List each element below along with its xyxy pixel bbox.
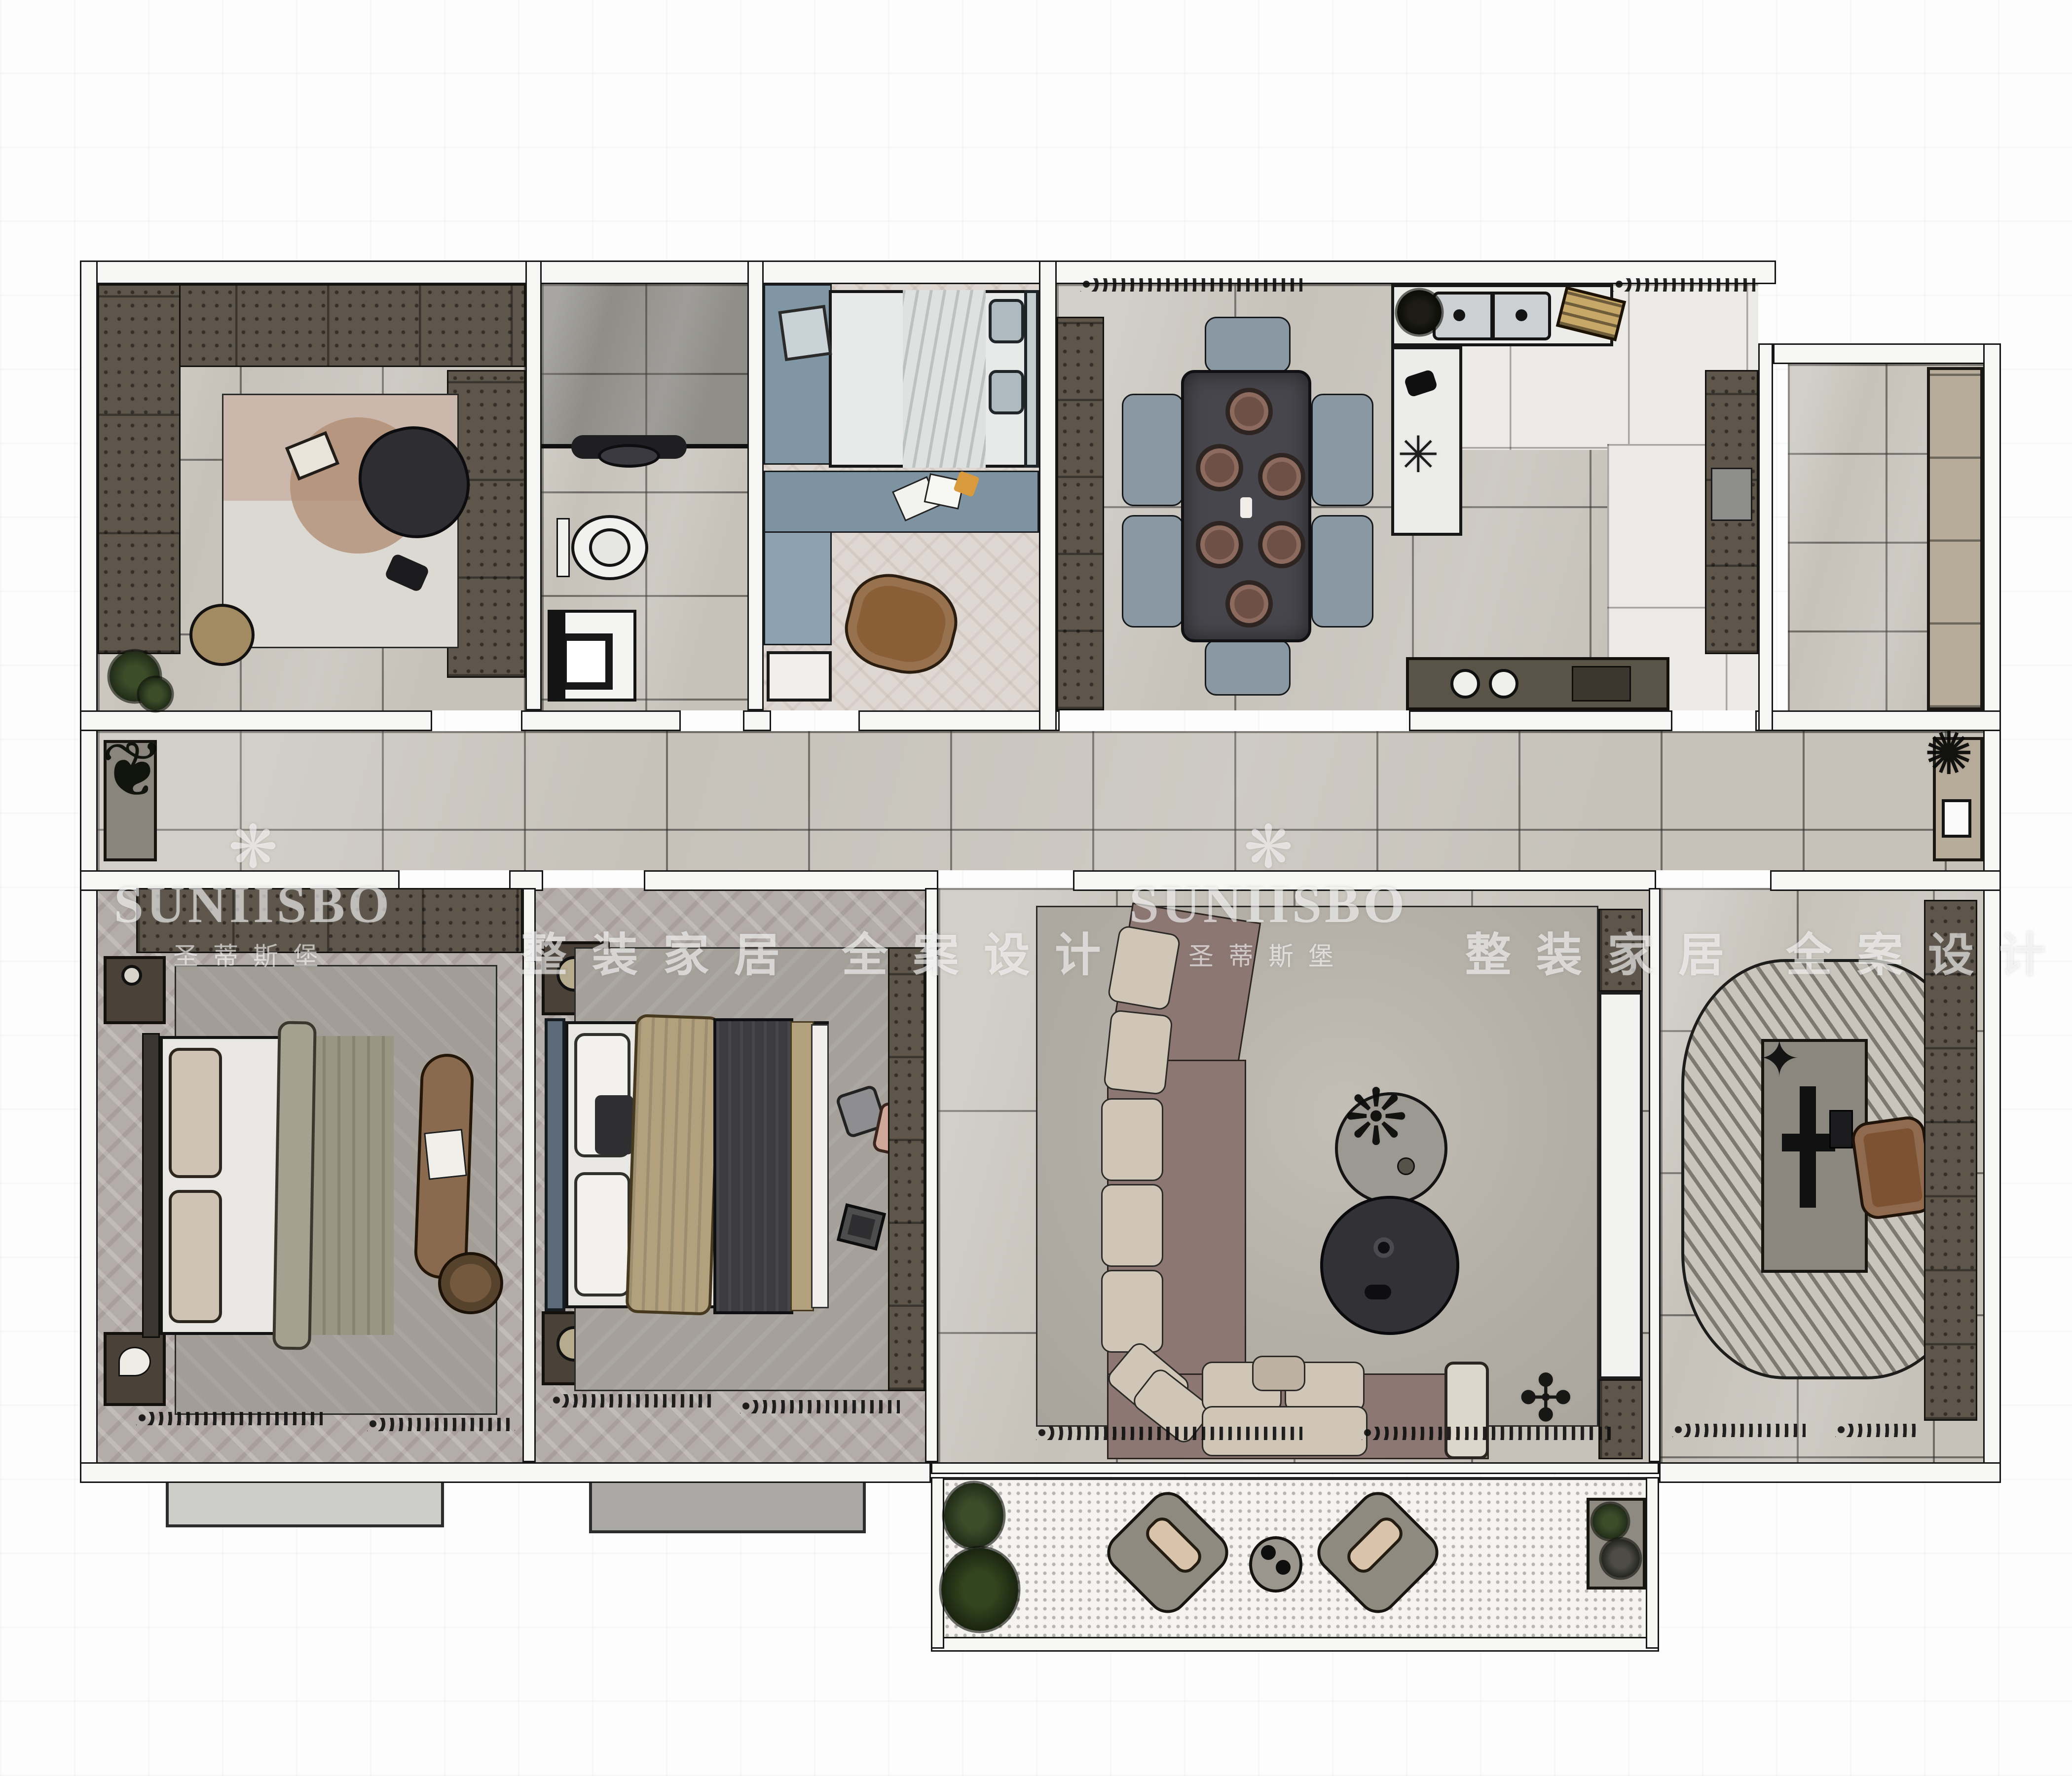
bed2-folded-cloth [595, 1095, 633, 1154]
wall-top-main [80, 260, 1776, 284]
sofa-pillow-3 [1101, 1098, 1163, 1181]
suniisbo-logo-icon-2: ❋ [1113, 823, 1424, 873]
master-bedroom-bay-window [166, 1480, 444, 1527]
nightstand-decor [118, 1347, 151, 1376]
balcony-plant-2 [941, 1548, 1018, 1631]
master-curtain-left [136, 1412, 323, 1425]
balcony-plant-1 [944, 1483, 1003, 1548]
kids-bed-blanket [903, 290, 986, 468]
plate-4 [1196, 521, 1243, 568]
toilet-seat [589, 528, 630, 567]
dining-chair-left-2 [1122, 515, 1184, 628]
kitchen-herb-plant-icon: ✳ [1397, 426, 1440, 485]
sofa-pillow-2 [1103, 1009, 1173, 1095]
toilet-tank [556, 518, 570, 577]
wall-balcony-left [931, 1477, 944, 1649]
watermark-slogan-left: 整装家居 全案设计 [521, 918, 1126, 984]
bed2-wardrobe [888, 947, 925, 1391]
plate-5 [1258, 521, 1305, 568]
wall-corridor-e [1770, 870, 2001, 891]
wall-upper-e [1409, 710, 1672, 731]
watermark-brand-en-2: SUNIISBO [1113, 873, 1424, 935]
living-plant-stand-icon: ✣ [1518, 1362, 1573, 1437]
balcony-sliding-door [931, 1462, 1659, 1474]
wall-bath-kids [747, 260, 764, 710]
master-headboard [142, 1033, 160, 1338]
coffee-table-dark-remote [1365, 1285, 1391, 1299]
watermark-brand-cn-2: 圣蒂斯堡 [1113, 935, 1424, 972]
cloakroom-pouf [189, 604, 255, 666]
master-pillow-1 [169, 1048, 222, 1178]
sink-divider [1490, 292, 1494, 340]
wall-upper-b [521, 710, 681, 731]
cloakroom-plant-2 [139, 678, 172, 710]
wall-bottom-right [1659, 1462, 2001, 1483]
desk-monitor-arm [1782, 1134, 1835, 1151]
coffee-table-plant-icon: ❊ [1344, 1074, 1408, 1163]
desk-keyboard [1829, 1110, 1853, 1148]
kids-sketch-chair [778, 305, 832, 361]
hallway-plant-icon: ❦ [101, 728, 165, 817]
stove-burner-1 [1450, 669, 1480, 699]
master-blanket-fold [272, 1021, 317, 1350]
dining-chair-right-2 [1311, 515, 1373, 628]
entry-plant-icon: ✺ [1924, 719, 1974, 789]
sofa-pillow-5 [1101, 1270, 1163, 1353]
watermark-slogan-right: 整装家居 全案设计 [1465, 918, 2070, 984]
floor-plan-canvas: ✳ ❦ ✺ [0, 0, 2072, 1776]
table-runner-detail [1240, 497, 1252, 518]
balcony-cup-1 [1261, 1545, 1276, 1560]
wall-outer-right [1983, 343, 2001, 1480]
master-curtain-right [367, 1418, 515, 1431]
bed2-blanket-edge [790, 1021, 814, 1311]
dining-chair-left-1 [1122, 394, 1184, 506]
utility-balcony-cabinet [1927, 367, 1983, 710]
cloakroom-wardrobe-top [142, 284, 525, 367]
wall-cloak-bath [525, 260, 542, 710]
dining-pantry-cabinet [1057, 317, 1104, 710]
bed2-curtain-right [740, 1400, 900, 1413]
bed2-sheet-edge [811, 1024, 829, 1308]
kitchen-window-plants [1613, 278, 1755, 292]
bench-book [424, 1129, 467, 1180]
kids-storage-box [767, 651, 832, 702]
kitchen-oven-front [1711, 468, 1752, 521]
wall-bottom-left [80, 1462, 931, 1483]
cloakroom-wardrobe-left [98, 284, 181, 654]
wall-balcony-right [1646, 1477, 1659, 1649]
watermark-right: ❋ SUNIISBO 圣蒂斯堡 [1113, 823, 1424, 972]
plate-2 [1196, 444, 1243, 491]
living-curtain-right [1362, 1427, 1613, 1440]
watermark-brand-cn: 圣蒂斯堡 [98, 935, 408, 972]
bathroom-sink [598, 444, 660, 468]
master-pillow-2 [169, 1190, 222, 1323]
study-curtain-right [1835, 1424, 1918, 1437]
desk-plant-icon: ✦ [1758, 1030, 1801, 1089]
study-curtain-left [1672, 1424, 1806, 1437]
tv-cabinet-bottom [1598, 1379, 1643, 1459]
sofa-armrest [1444, 1362, 1489, 1459]
bed2-pillow-2 [574, 1172, 630, 1296]
bed2-blanket-tan [625, 1014, 721, 1316]
living-curtain-left [1036, 1427, 1302, 1440]
bed2-headboard [545, 1018, 565, 1311]
master-pouf [438, 1252, 503, 1314]
shower-area-floor [542, 284, 747, 447]
entry-console-vase [1942, 799, 1971, 838]
balcony-plant-3 [1592, 1504, 1628, 1539]
coffee-table-dark [1320, 1196, 1459, 1335]
plate-3 [1258, 453, 1305, 500]
dining-chair-top [1205, 317, 1291, 373]
wall-corridor-c [644, 870, 938, 891]
suniisbo-logo-icon: ❋ [98, 823, 408, 873]
kids-pillow-1 [989, 299, 1024, 343]
sink-drain-1 [1453, 309, 1465, 321]
dining-window-plants [1080, 278, 1302, 292]
study-chair [1850, 1114, 1936, 1221]
stove-burner-2 [1489, 669, 1518, 699]
bed2-curtain-left [551, 1394, 713, 1407]
sofa-lumbar-pillow [1252, 1356, 1305, 1391]
sofa-pillow-4 [1101, 1184, 1163, 1267]
plate-1 [1225, 388, 1273, 435]
watermark-brand-en: SUNIISBO [98, 873, 408, 935]
wall-top-balcony [1773, 343, 2001, 364]
washing-machine-drum [559, 633, 613, 690]
wall-balcony-bottom [931, 1637, 1659, 1652]
wall-kids-dining [1039, 260, 1057, 731]
bed2-blanket-charcoal [713, 1018, 793, 1314]
sink-drain-2 [1516, 309, 1527, 321]
balcony-cup-2 [1276, 1560, 1291, 1575]
plate-6 [1225, 580, 1273, 628]
dining-chair-bottom [1205, 639, 1291, 696]
wall-kitchen-balcony [1758, 343, 1773, 731]
dining-chair-right-1 [1311, 394, 1373, 506]
stove-counter-item [1572, 666, 1631, 702]
kitchen-plant-black [1397, 290, 1442, 334]
coffee-table-dark-bowl [1373, 1237, 1394, 1258]
kids-headboard [1024, 290, 1039, 468]
tv-media-wall [1598, 992, 1643, 1379]
wall-upper-d [858, 710, 1060, 731]
kids-pillow-2 [989, 370, 1024, 414]
balcony-plant-4 [1601, 1539, 1640, 1578]
wall-upper-c [743, 710, 771, 731]
watermark-left: ❋ SUNIISBO 圣蒂斯堡 [98, 823, 408, 972]
second-bedroom-bay-window [589, 1480, 866, 1533]
washing-machine-panel [548, 610, 565, 702]
